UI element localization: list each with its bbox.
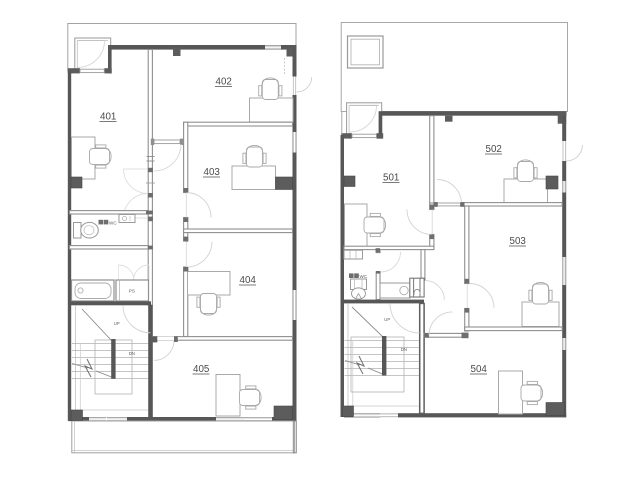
svg-text:403: 403	[204, 167, 221, 178]
svg-text:DN: DN	[129, 351, 135, 356]
svg-text:WC: WC	[109, 220, 117, 225]
svg-text:401: 401	[100, 112, 116, 123]
svg-text:402: 402	[216, 77, 232, 88]
svg-text:WC: WC	[360, 274, 368, 279]
svg-text:PS: PS	[129, 289, 135, 294]
svg-text:502: 502	[486, 144, 502, 155]
svg-text:405: 405	[193, 364, 210, 375]
svg-text:DN: DN	[401, 347, 407, 352]
svg-text:504: 504	[471, 364, 488, 375]
svg-text:503: 503	[510, 236, 527, 247]
svg-text:404: 404	[240, 275, 257, 286]
svg-text:501: 501	[383, 173, 399, 184]
svg-text:UP: UP	[384, 317, 390, 322]
svg-text:UP: UP	[114, 321, 120, 326]
